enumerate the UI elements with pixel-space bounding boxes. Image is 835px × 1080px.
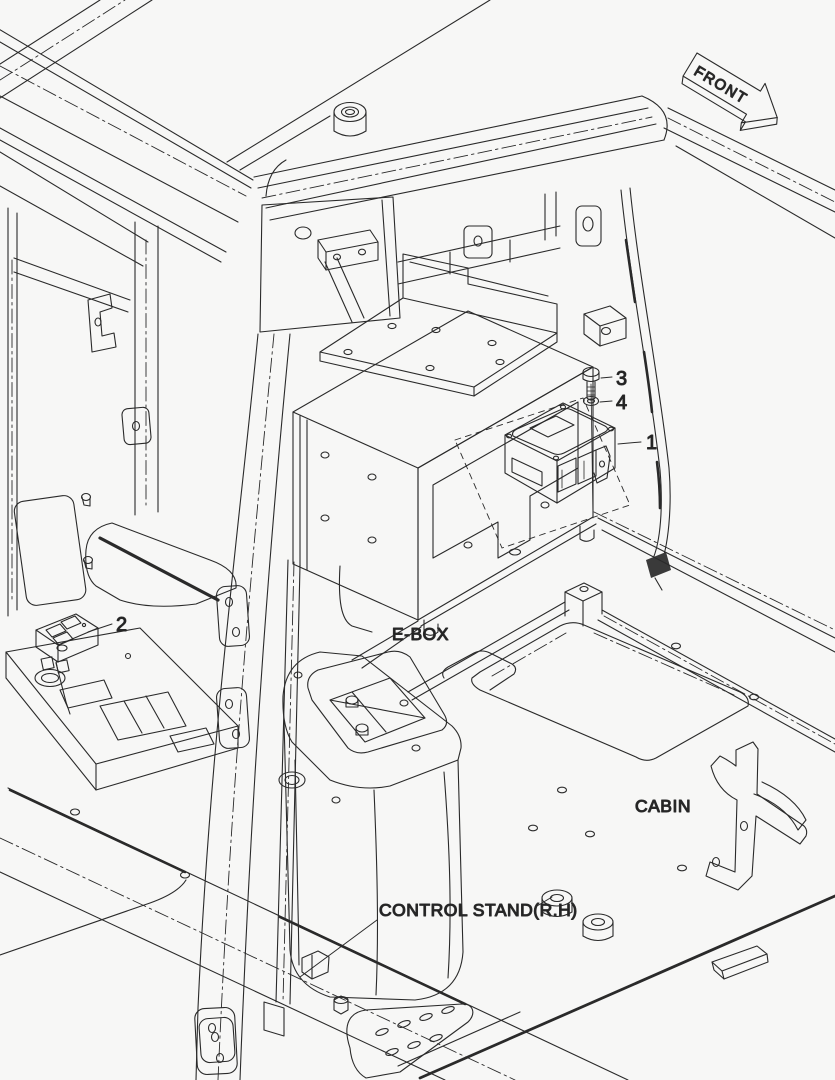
switch-part xyxy=(36,614,98,714)
front-pillar xyxy=(196,334,300,1080)
seat-cushion xyxy=(86,523,236,606)
floor-front-frame xyxy=(0,788,628,1080)
callout-4: 4 xyxy=(616,392,627,414)
floor-hatch xyxy=(472,623,749,761)
front-arrow-label: FRONT xyxy=(691,63,750,108)
corner-post xyxy=(260,160,400,332)
left-console xyxy=(6,628,238,790)
pillar-bracket xyxy=(121,407,151,445)
mount-block xyxy=(584,306,626,346)
roof-frame xyxy=(0,0,835,346)
wall-panel xyxy=(13,494,87,606)
seat-bracket xyxy=(706,742,807,890)
callout-3: 3 xyxy=(616,368,627,390)
callout-2: 2 xyxy=(116,614,127,636)
ebox-label: E-BOX xyxy=(392,624,449,644)
area-labels: E-BOX CABIN CONTROL STAND(R.H) xyxy=(300,624,691,977)
hinge-bracket xyxy=(576,206,601,246)
control-stand xyxy=(279,651,463,1000)
left-wall xyxy=(8,208,158,616)
wire-harness xyxy=(621,188,671,590)
isometric-parts-diagram: 1 2 3 4 E-BOX CABIN CONTROL STAND(R.H) F… xyxy=(0,0,835,1080)
cabin-label: CABIN xyxy=(635,796,691,816)
rubber-mount xyxy=(583,914,613,941)
harness-connector xyxy=(646,552,671,578)
callout-1: 1 xyxy=(646,432,657,454)
wedge-block xyxy=(712,946,768,979)
roof-mount-cylinder xyxy=(334,103,366,137)
ebox-assembly xyxy=(293,254,596,668)
pillar-pad xyxy=(216,687,250,749)
cabin-floor xyxy=(398,512,835,1078)
parts-diagram-page: 1 2 3 4 E-BOX CABIN CONTROL STAND(R.H) F… xyxy=(0,0,835,1080)
control-stand-label: CONTROL STAND(R.H) xyxy=(379,900,578,920)
